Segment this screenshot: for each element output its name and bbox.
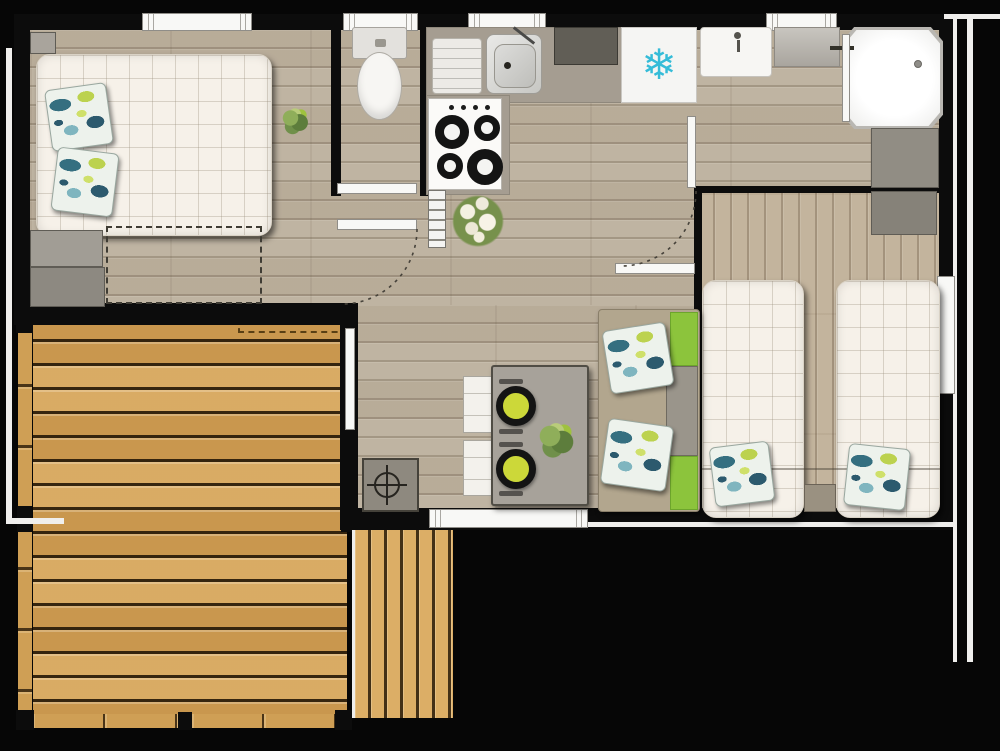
drain-symbol-vline — [386, 465, 388, 505]
deck-planks — [33, 318, 347, 716]
stove-knob — [485, 105, 490, 110]
cutlery-mark — [499, 429, 523, 434]
site-outline-right-outer — [967, 14, 973, 662]
bedroom-wardrobe-2 — [30, 267, 105, 307]
deck-rail-bottom-1 — [33, 714, 178, 728]
burner-large-tl — [435, 115, 469, 149]
bed-pillow-1 — [44, 82, 114, 152]
entry-sliding-door — [429, 509, 588, 528]
bedroom-floor-plant — [280, 106, 310, 136]
table-plant — [536, 420, 576, 460]
sofa-pillow-1 — [601, 321, 674, 394]
shower-drain — [914, 60, 922, 68]
sofa-backrest-green-bottom — [670, 456, 698, 510]
wall-wc-left — [331, 14, 341, 196]
kitchen-dark-tray — [554, 27, 618, 65]
cutlery-mark — [499, 442, 523, 447]
fridge: ❄ — [621, 27, 697, 103]
door-arc-bedroom — [341, 228, 419, 306]
stove — [428, 98, 502, 190]
twin-pillow-right — [843, 443, 911, 511]
twin-wardrobe-1 — [871, 128, 939, 188]
deck-post-bottom-mid — [178, 712, 192, 730]
basin-faucet-bar — [737, 40, 740, 52]
stove-knob — [461, 105, 466, 110]
cutlery-mark — [499, 379, 523, 384]
dining-chair-1 — [463, 376, 493, 433]
cutlery-mark — [499, 491, 523, 496]
bedroom-dashed-storage-zone — [106, 226, 262, 304]
floor-plan-canvas: ❄ — [0, 0, 1000, 751]
bedroom-wardrobe-1 — [30, 230, 103, 267]
stove-knob — [473, 105, 478, 110]
technical-box — [362, 458, 419, 512]
bed-pillow-2 — [50, 146, 119, 217]
toilet-bowl — [357, 52, 402, 120]
place-setting-2 — [496, 449, 536, 489]
shower-tray — [845, 30, 940, 126]
corner-shower — [842, 27, 943, 129]
dining-chair-2 — [463, 440, 493, 496]
window-bedroom — [142, 13, 252, 31]
flower-bouquet — [452, 190, 504, 252]
shower-entry-strip — [842, 34, 850, 122]
sink-drain — [504, 62, 511, 69]
sofa-pillow-2 — [600, 418, 675, 493]
snowflake-icon: ❄ — [641, 44, 676, 86]
bedroom-corner-shelf — [30, 32, 56, 54]
sofa-backrest-green-top — [670, 312, 698, 366]
deck-post-bottom-right — [335, 710, 352, 730]
deck-rail-bottom-2 — [192, 714, 335, 728]
deck-gate-strip — [345, 328, 355, 430]
toilet-flush-button — [375, 39, 386, 47]
kitchen-sink — [486, 34, 542, 94]
twin-nightstand — [804, 484, 836, 512]
twin-wardrobe-2 — [871, 191, 937, 235]
burner-large-br — [467, 149, 503, 185]
place-setting-1 — [496, 386, 536, 426]
deck-post-bottom-left — [16, 710, 34, 730]
burner-small-tr — [474, 115, 500, 141]
kitchen-drainboard — [432, 38, 482, 94]
wall-left — [14, 14, 30, 320]
basin-faucet-dot — [734, 32, 741, 39]
deck-steps-vertical-planks — [352, 528, 453, 718]
site-outline-left — [6, 48, 12, 524]
ladder-radiator — [428, 190, 446, 248]
twin-pillow-left — [709, 441, 776, 508]
door-arc-bathroom — [620, 190, 698, 268]
stove-knob — [449, 105, 454, 110]
site-outline-top-right — [944, 14, 1000, 19]
burner-small-bl — [437, 153, 463, 179]
washbasin — [700, 27, 772, 77]
bathroom-door-leaf — [687, 116, 696, 188]
sink-bowl — [494, 44, 536, 88]
site-outline-left-foot — [6, 518, 64, 524]
wc-sliding-door-panel-1 — [337, 183, 417, 194]
